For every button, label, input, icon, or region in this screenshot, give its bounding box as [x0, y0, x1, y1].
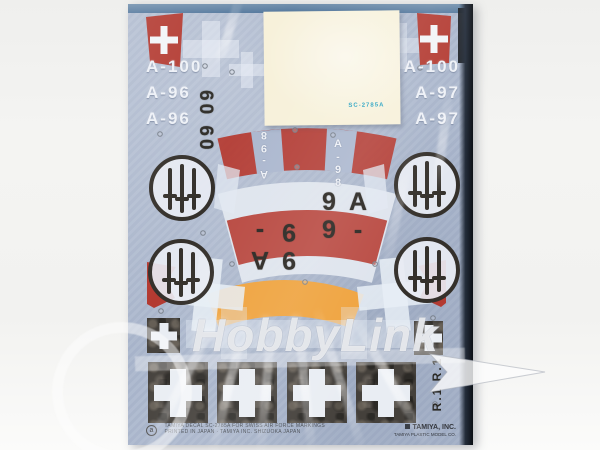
cross-arm [362, 385, 410, 401]
brand-text: TAMIYA, INC. [412, 424, 456, 431]
black-swiss-cross-decal [356, 362, 416, 423]
stencil-code-rotated: 60 60 [194, 90, 216, 184]
cross-arm [223, 385, 271, 401]
product-photo: A-100 A-96 A-96 A-100 A-97 A-97 60 60 A-… [0, 0, 600, 450]
brand-subline: TAMIYA PLASTIC MODEL CO. [390, 432, 456, 437]
band-code-a98: A-98 [258, 124, 270, 180]
paper-slip: SC-2785A [263, 10, 400, 125]
brand-name: TAMIYA, INC. [390, 424, 456, 432]
tamiya-logo-mark [405, 424, 410, 429]
watermark-swoosh-circle [52, 322, 192, 450]
watermark-brand-text: HobbyLink [192, 308, 439, 362]
slip-code: SC-2785A [348, 102, 384, 108]
squadron-emblem-decal [150, 241, 212, 303]
brand-block: TAMIYA, INC. TAMIYA PLASTIC MODEL CO. [390, 424, 456, 437]
band-code-a99: A-99 [246, 178, 304, 274]
black-swiss-cross-decal [217, 362, 277, 423]
black-swiss-cross-decal [287, 362, 347, 423]
squadron-emblem-decal [396, 239, 458, 301]
band-code-a99: A-99 [314, 188, 372, 284]
aircraft-code: A-100 [146, 54, 202, 80]
squadron-emblem-decal [396, 154, 458, 216]
cross-arm [293, 385, 341, 401]
fine-print-line: PRINTED IN JAPAN · TAMIYA INC. SHIZUOKA … [164, 429, 325, 435]
watermark-arrow [425, 340, 550, 404]
